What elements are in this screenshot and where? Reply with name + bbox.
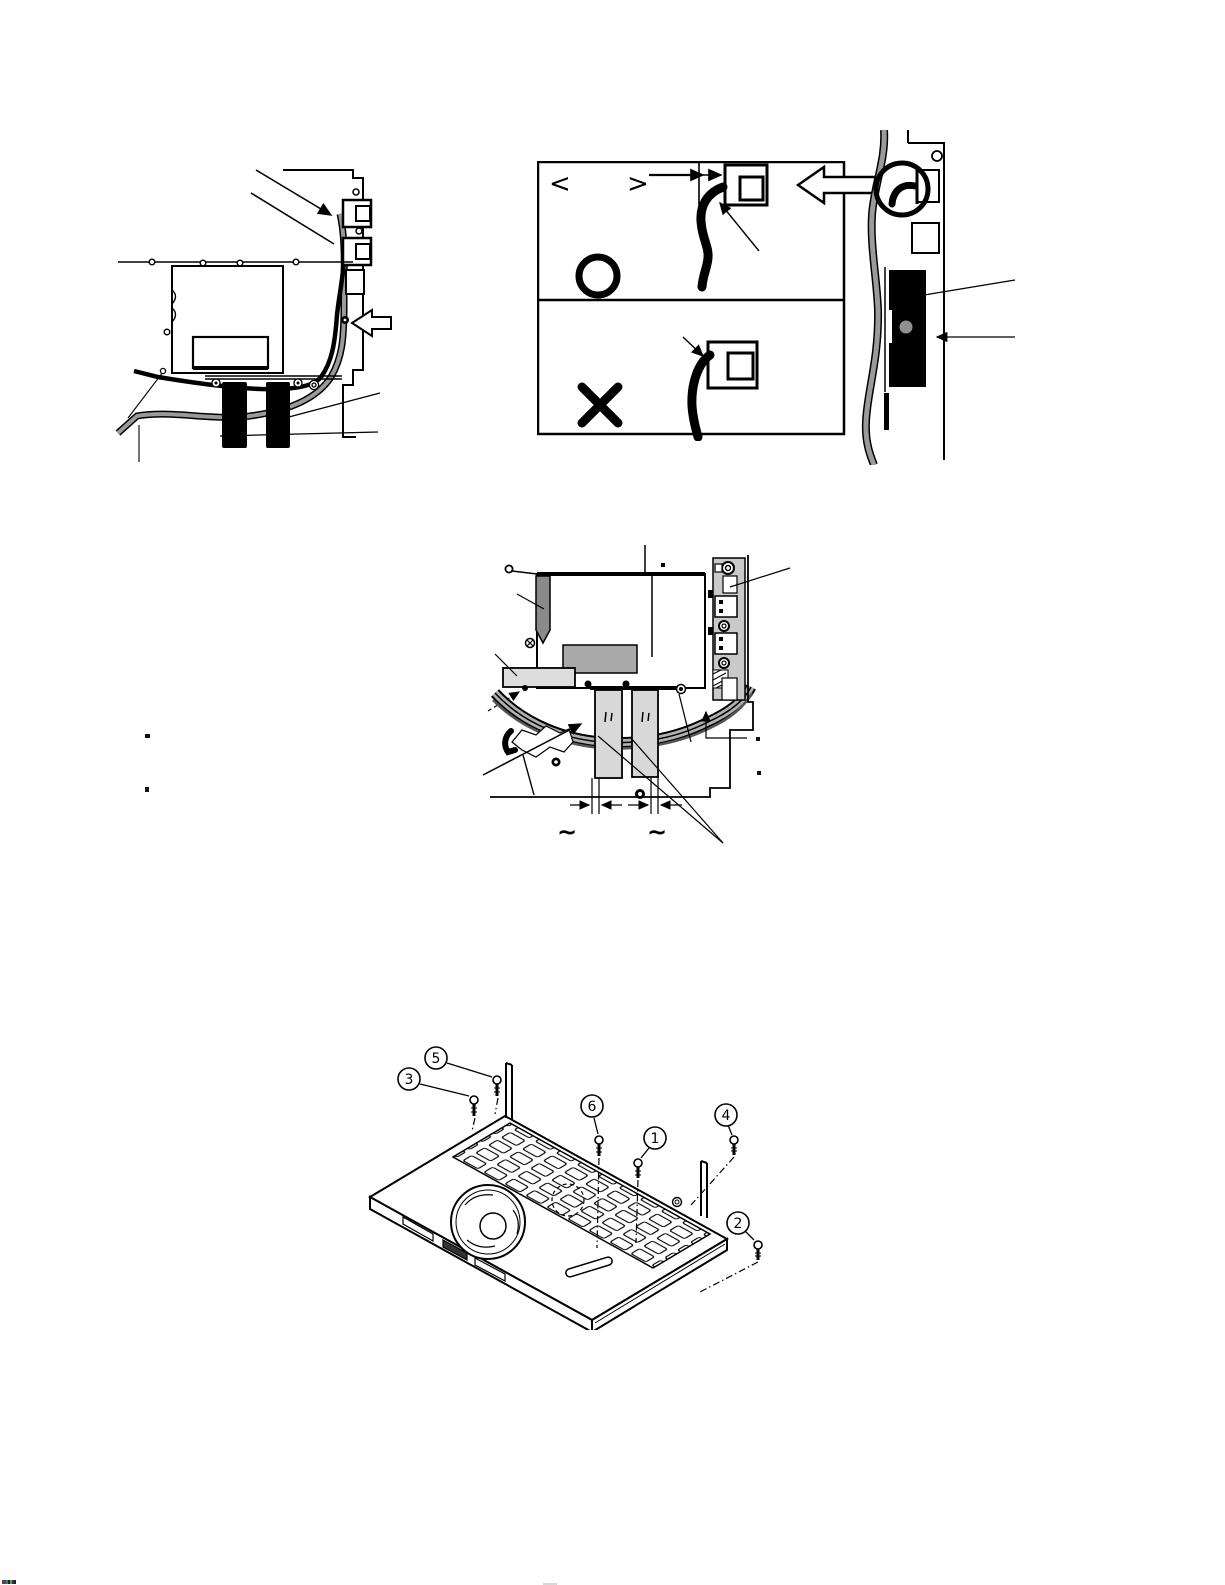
- bullet-marker: [145, 787, 149, 792]
- ribbon-cable-left: [595, 690, 622, 778]
- svg-text:2: 2: [734, 1216, 743, 1232]
- screw-dot: [585, 681, 592, 688]
- figure-ok-ng-box: < >: [537, 161, 877, 441]
- fan-assembly: [451, 1185, 525, 1259]
- figure-cable-routing-top-left: [110, 140, 410, 470]
- callout-6: 6: [581, 1095, 603, 1117]
- screw-icon: [634, 1159, 642, 1178]
- figure-side-strip: [855, 130, 1025, 465]
- hinge-post-right: [701, 1161, 707, 1218]
- leader-line: [256, 170, 331, 215]
- bullet-marker: [757, 771, 761, 775]
- leader-line: [912, 280, 1015, 297]
- edge-connectors: [343, 189, 371, 294]
- screw-icon: [595, 1136, 603, 1156]
- tilde-mark-left: ~: [557, 818, 577, 846]
- callout-5: 5: [425, 1047, 447, 1069]
- callout-4: 4: [715, 1104, 737, 1126]
- scan-artifact-color-strip: [2, 1580, 16, 1584]
- figure-cable-routing-middle: ~ ~: [460, 530, 800, 865]
- dimension-marks: [570, 777, 682, 814]
- cable-hook: [505, 565, 512, 572]
- svg-text:5: 5: [432, 1051, 441, 1067]
- module-label-plate: [193, 337, 268, 368]
- callout-3: 3: [398, 1068, 420, 1090]
- bullet-marker: [145, 734, 150, 738]
- flat-cable-bar: [503, 668, 575, 687]
- screw-icon: [754, 1241, 762, 1260]
- white-arrow-left-icon: [352, 310, 391, 336]
- screw-dot: [522, 685, 528, 691]
- leader-line: [251, 193, 334, 244]
- screw-dot: [623, 681, 630, 688]
- edge-bar: [884, 393, 889, 430]
- sponge-right: [266, 382, 290, 448]
- hinge-post-left: [506, 1063, 512, 1120]
- screw-icon: [470, 1096, 478, 1116]
- screw-icon: [730, 1136, 738, 1155]
- cable-bend: [892, 185, 915, 204]
- screw-hole: [164, 329, 170, 335]
- service-manual-page: < >: [0, 0, 1225, 1585]
- svg-text:6: 6: [588, 1099, 597, 1115]
- svg-text:4: 4: [722, 1108, 731, 1124]
- screw-icon: [493, 1076, 501, 1096]
- callout-2: 2: [727, 1212, 749, 1234]
- bracket-open: <: [549, 169, 571, 199]
- callout-1: 1: [644, 1127, 666, 1149]
- screw-hole-through-sponge: [900, 321, 913, 334]
- bullet-marker: [756, 737, 760, 741]
- tilde-mark-right: ~: [647, 818, 667, 846]
- sponge-slot: [887, 310, 892, 343]
- sponge-left: [222, 382, 247, 448]
- figure-laptop-screws: 5 3 6 1 4 2: [355, 1030, 785, 1330]
- bracket-close: >: [627, 169, 649, 199]
- antenna-strip: [536, 576, 550, 643]
- svg-text:1: 1: [651, 1131, 660, 1147]
- cable-slack-outline: [512, 726, 573, 757]
- svg-text:3: 3: [405, 1072, 414, 1088]
- connector-strip: [708, 558, 745, 700]
- screw-icon: [526, 639, 535, 648]
- alignment-dot: [661, 563, 665, 567]
- screw-hole: [932, 151, 942, 161]
- edge-connector: [912, 223, 939, 253]
